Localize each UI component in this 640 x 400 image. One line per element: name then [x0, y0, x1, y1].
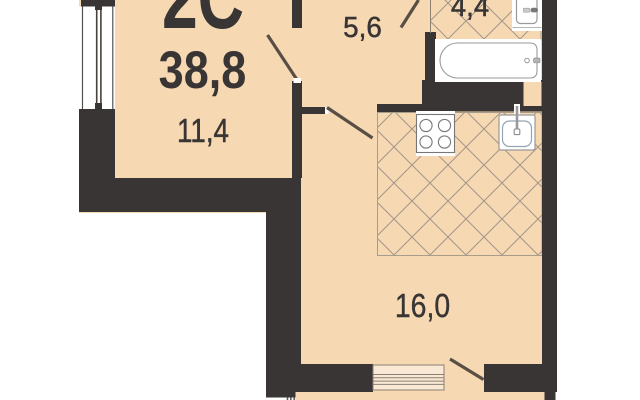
svg-text:16,0: 16,0: [395, 287, 450, 325]
svg-text:38,8: 38,8: [159, 41, 247, 100]
svg-text:4,4: 4,4: [451, 0, 489, 22]
svg-text:5,6: 5,6: [343, 11, 382, 44]
svg-text:11,4: 11,4: [177, 113, 229, 150]
